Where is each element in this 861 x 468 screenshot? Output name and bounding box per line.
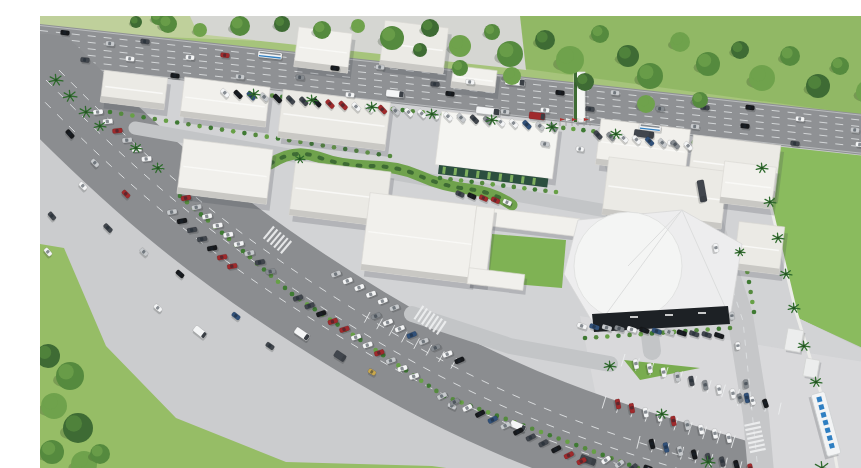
car-windows (644, 410, 648, 414)
hedge-bush (748, 290, 753, 295)
tree-highlight (43, 395, 57, 409)
car-windows (730, 314, 734, 317)
palm-crown (69, 95, 72, 98)
tree-highlight (558, 48, 573, 63)
car-windows (143, 40, 146, 44)
car-windows (96, 110, 100, 114)
hedge-bush (592, 449, 597, 454)
hedge-bush (705, 327, 710, 332)
tree-highlight (751, 67, 765, 81)
hedge-bush (108, 110, 113, 115)
hedge-bush (728, 326, 733, 331)
car-windows (205, 214, 209, 218)
tree-highlight (382, 28, 395, 41)
car-windows (745, 396, 749, 400)
car-windows (200, 237, 204, 241)
palm-crown (609, 365, 612, 368)
palm-crown (157, 167, 160, 170)
tree-highlight (593, 26, 603, 36)
hedge-bush (561, 126, 566, 131)
hedge-bush (119, 111, 124, 116)
tree-highlight (485, 25, 494, 34)
car-windows (703, 383, 707, 387)
car-windows (210, 246, 214, 250)
hedge-bush (434, 389, 439, 394)
hedge-bush (290, 292, 295, 297)
car-windows (798, 117, 801, 121)
warehouse-e1 (719, 161, 780, 215)
palm-crown (661, 413, 664, 416)
car-windows (194, 205, 198, 209)
tree-highlight (698, 54, 711, 67)
tree-highlight (275, 17, 284, 26)
palm-crown (769, 201, 772, 204)
car-windows (503, 110, 506, 114)
car-windows (613, 91, 616, 95)
palm-crown (803, 345, 806, 348)
car-windows (378, 65, 381, 69)
palm-crown (99, 125, 102, 128)
car-windows (144, 157, 148, 161)
hedge-bush (469, 180, 474, 185)
car-windows (268, 270, 272, 274)
hedge-bush (427, 384, 432, 389)
palm-crown (253, 93, 256, 96)
hedge-bush (717, 326, 722, 331)
hedge-bush (242, 131, 247, 136)
tree-highlight (423, 20, 433, 30)
scene-svg (40, 16, 861, 468)
tree-highlight (639, 96, 649, 106)
hedge-bush (571, 127, 576, 132)
car-windows (247, 251, 251, 255)
hedge-bush (231, 129, 236, 134)
car-windows (853, 128, 856, 132)
hedge-bush (153, 117, 158, 122)
car-windows (106, 120, 110, 124)
tree-highlight (672, 34, 683, 45)
aerial-site-render (40, 16, 861, 468)
car-windows (793, 142, 796, 146)
car-windows (588, 107, 591, 111)
palm-crown (777, 237, 780, 240)
hedge-bush (747, 280, 752, 285)
car-windows (448, 92, 451, 96)
hedge-bush (565, 440, 570, 445)
hedge-bush (616, 333, 621, 338)
hedge-bush (501, 183, 506, 188)
hedge-bush (480, 181, 485, 186)
tree (40, 440, 64, 464)
hedge-bush (556, 436, 561, 441)
hedge-bush (543, 188, 548, 193)
hedge-bush (522, 186, 527, 191)
car-windows (699, 427, 703, 431)
tree-highlight (66, 415, 83, 432)
palm-crown (551, 126, 554, 129)
palm-crown (431, 113, 434, 116)
car-windows (226, 233, 230, 237)
car-windows (125, 138, 129, 142)
car-windows (115, 129, 119, 133)
car-windows (215, 224, 219, 228)
palm-crown (491, 119, 494, 122)
car-windows (333, 66, 336, 70)
car-windows (180, 219, 184, 223)
hedge-bush (503, 417, 508, 422)
tree-highlight (232, 18, 243, 29)
palm-crown (815, 381, 818, 384)
hedge-bush (594, 335, 599, 340)
car-windows (713, 431, 717, 435)
tree-highlight (619, 47, 631, 59)
tree-highlight (833, 58, 843, 68)
car-windows (238, 75, 241, 79)
hedge-bush (438, 176, 443, 181)
tree-highlight (315, 22, 325, 32)
tree-highlight (578, 74, 588, 84)
palm-crown (615, 133, 618, 136)
car-windows (648, 366, 652, 370)
hedge-bush (253, 133, 258, 138)
hedge-bush (164, 119, 169, 124)
tree-highlight (131, 17, 138, 24)
hedge-bush (600, 453, 605, 458)
hedge-bush (554, 190, 559, 195)
tree-highlight (693, 93, 702, 102)
palm-crown (85, 111, 88, 114)
hedge-bush (130, 113, 135, 118)
car-windows (190, 228, 194, 232)
car-windows (108, 42, 111, 46)
tree-highlight (58, 364, 73, 379)
car-windows (693, 125, 696, 129)
tree-highlight (194, 24, 202, 32)
storefront-sign (630, 316, 638, 318)
hedge-bush (141, 115, 146, 120)
kiosk-canopy (803, 358, 820, 378)
palm-crown (299, 158, 302, 161)
hedge-bush (388, 154, 393, 159)
palm-crown (55, 79, 58, 82)
hedge-bush (175, 120, 180, 125)
car-windows (676, 374, 680, 378)
palm-crown (785, 273, 788, 276)
car-windows (188, 55, 191, 59)
hedge-bush (283, 286, 288, 291)
tree-highlight (505, 68, 515, 78)
car-windows (230, 264, 234, 268)
truck-cab (700, 196, 707, 202)
hedge-bush (276, 279, 281, 284)
car-windows (662, 370, 666, 374)
warehouse-b3-central (360, 193, 483, 290)
tree-highlight (92, 446, 103, 457)
hedge-bush (574, 443, 579, 448)
car-windows (736, 344, 740, 347)
hedge-bush (539, 430, 544, 435)
car-windows (689, 379, 693, 383)
car-windows (63, 31, 66, 35)
car-windows (83, 58, 86, 62)
car-windows (616, 402, 620, 406)
tree-highlight (808, 76, 821, 89)
tree-highlight (499, 43, 513, 57)
hedge-bush (581, 128, 586, 133)
tree-highlight (782, 48, 793, 59)
truck-cab (519, 79, 524, 85)
hedge-bush (605, 334, 610, 339)
car-windows (743, 124, 746, 128)
car-windows (170, 210, 174, 214)
car-windows (433, 82, 436, 86)
hedge-bush (490, 182, 495, 187)
car-windows (630, 406, 634, 410)
car-windows (727, 436, 731, 440)
tree-highlight (537, 32, 548, 43)
car-windows (128, 57, 131, 61)
hedge-bush (419, 378, 424, 383)
truck-cab (493, 109, 499, 116)
kiosk-canopy (784, 328, 804, 352)
tree-highlight (161, 16, 171, 26)
hedge-bush (548, 433, 553, 438)
hedge-bush (530, 426, 535, 431)
hedge-bush (533, 187, 538, 192)
palm-crown (739, 251, 742, 254)
car-windows (184, 196, 188, 200)
car-windows (173, 74, 176, 78)
truck-cab (540, 113, 545, 119)
hedge-bush (448, 177, 453, 182)
tree-highlight (451, 37, 463, 49)
hedge-bush (752, 310, 757, 315)
palm-crown (135, 147, 138, 150)
car-windows (731, 391, 735, 395)
palm-crown (311, 99, 314, 102)
tree-highlight (453, 61, 462, 70)
car-windows (298, 76, 301, 80)
car-windows (748, 106, 751, 110)
car-windows (348, 93, 351, 97)
hedge-bush (512, 185, 517, 190)
hedge-bush (750, 300, 755, 305)
tree-highlight (733, 42, 743, 52)
car-windows (543, 108, 546, 112)
tree-highlight (414, 44, 422, 52)
car-windows (223, 53, 226, 57)
storefront-sign (698, 312, 706, 314)
car-windows (717, 387, 721, 391)
car-windows (671, 419, 675, 423)
palm-crown (761, 167, 764, 170)
palm-crown (793, 307, 796, 310)
car-windows (685, 423, 689, 427)
car-windows (634, 362, 638, 366)
palm-crown (371, 106, 374, 109)
tree-highlight (73, 453, 87, 467)
car-windows (237, 242, 241, 246)
car-windows (658, 107, 661, 111)
truck-cab (399, 91, 404, 97)
hedge-bush (459, 178, 464, 183)
storefront-sign (665, 314, 673, 316)
tree-highlight (42, 442, 55, 455)
palm-crown (707, 461, 710, 464)
car-windows (468, 80, 471, 84)
tree-highlight (352, 20, 360, 28)
tree-highlight (639, 65, 653, 79)
car-windows (258, 260, 262, 264)
hedge-bush (265, 134, 270, 139)
car-windows (220, 255, 224, 259)
car-windows (558, 91, 561, 95)
car-windows (744, 382, 748, 385)
hedge-bush (583, 336, 588, 341)
hedge-bush (583, 446, 588, 451)
